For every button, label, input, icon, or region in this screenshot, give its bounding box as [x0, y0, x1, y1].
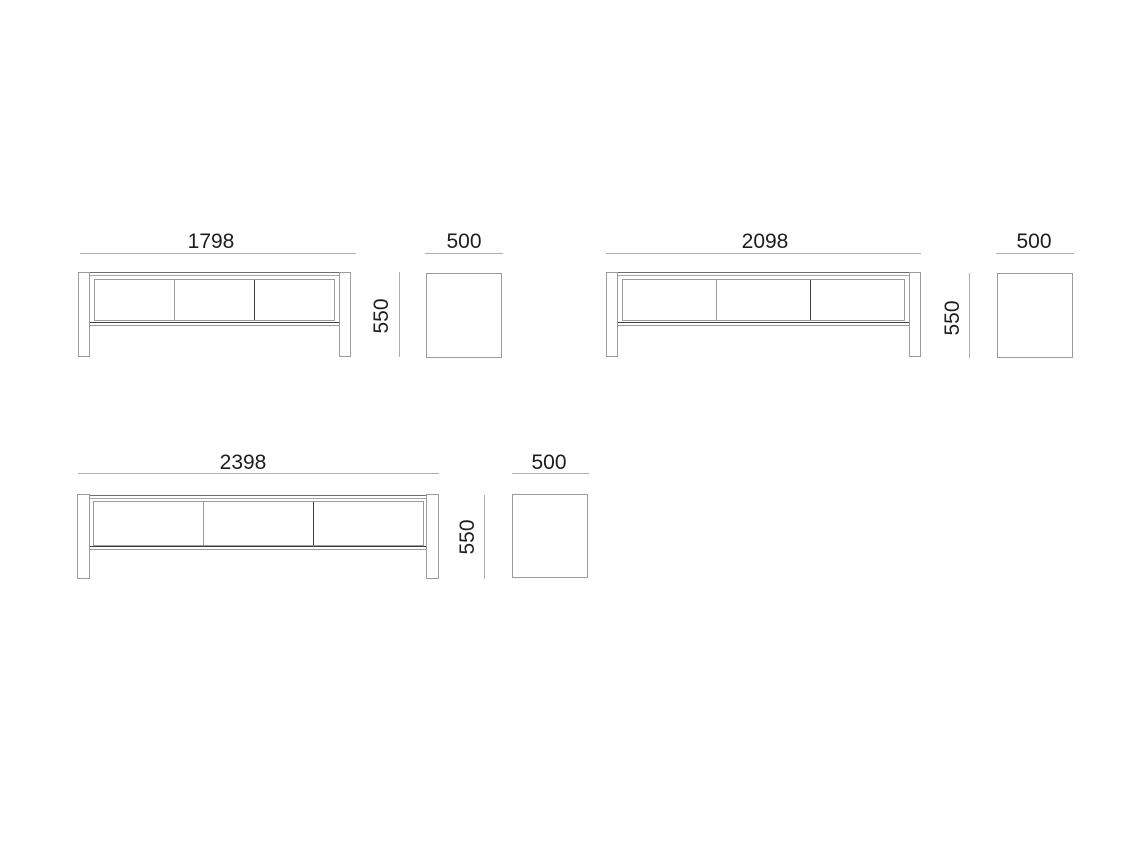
- drawer-front-1: [623, 280, 716, 320]
- drawer-front-3: [810, 280, 904, 320]
- side-view-outline: [512, 494, 588, 578]
- width-dimension-line: [606, 253, 921, 254]
- technical-drawing-sheet: 1798 550 500 2098 550 500: [0, 0, 1127, 845]
- front-view-drawer-box: [93, 501, 424, 546]
- width-dimension-line: [80, 253, 356, 254]
- height-dimension-label: 550: [457, 497, 479, 577]
- width-dimension-label: 2098: [705, 231, 825, 253]
- height-dimension-line: [399, 272, 400, 357]
- drawer-front-3: [313, 502, 423, 545]
- depth-dimension-label: 500: [404, 231, 524, 253]
- depth-dimension-label: 500: [974, 231, 1094, 253]
- front-view-top-panel: [78, 272, 351, 276]
- side-view-outline: [997, 273, 1073, 358]
- front-view-drawer-box: [94, 279, 335, 321]
- depth-dimension-line: [512, 473, 589, 474]
- front-view-top-panel: [77, 495, 439, 499]
- front-view-right-leg: [426, 494, 439, 579]
- front-view-bottom-rail: [618, 322, 909, 326]
- front-view-left-leg: [77, 494, 90, 579]
- drawer-front-2: [203, 502, 313, 545]
- width-dimension-label: 2398: [183, 452, 303, 474]
- front-view-right-leg: [339, 272, 351, 357]
- front-view-left-leg: [78, 272, 90, 357]
- depth-dimension-line: [996, 253, 1074, 254]
- front-view-top-panel: [606, 272, 921, 276]
- drawer-front-1: [95, 280, 174, 320]
- drawer-front-2: [716, 280, 810, 320]
- front-view-drawer-box: [622, 279, 905, 321]
- depth-dimension-label: 500: [489, 452, 609, 474]
- height-dimension-line: [484, 495, 485, 579]
- height-dimension-label: 550: [942, 278, 964, 358]
- front-view-right-leg: [909, 272, 921, 357]
- front-view-left-leg: [606, 272, 618, 357]
- front-view-bottom-rail: [90, 546, 426, 550]
- height-dimension-label: 550: [371, 276, 393, 356]
- depth-dimension-line: [425, 253, 503, 254]
- width-dimension-label: 1798: [151, 231, 271, 253]
- front-view-bottom-rail: [90, 322, 339, 326]
- width-dimension-line: [78, 473, 439, 474]
- drawer-front-1: [94, 502, 203, 545]
- side-view-outline: [426, 273, 502, 358]
- drawer-front-2: [174, 280, 254, 320]
- height-dimension-line: [969, 273, 970, 358]
- drawer-front-3: [254, 280, 334, 320]
